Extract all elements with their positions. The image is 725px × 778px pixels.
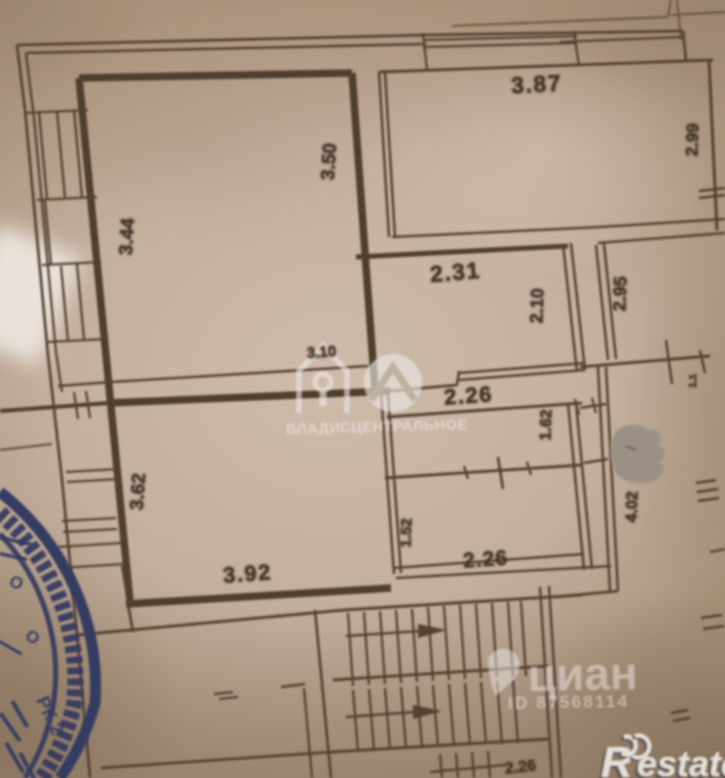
svg-text:3.87: 3.87 bbox=[511, 70, 563, 99]
svg-text:estate: estate bbox=[634, 746, 725, 778]
svg-text:2.26: 2.26 bbox=[443, 381, 493, 409]
svg-text:1.52: 1.52 bbox=[397, 518, 415, 548]
svg-text:РК 2: РК 2 bbox=[31, 693, 67, 738]
svg-text:О: О bbox=[6, 571, 26, 594]
svg-text:R: R bbox=[601, 738, 633, 778]
svg-text:3.50: 3.50 bbox=[318, 142, 342, 180]
svg-text:4.02: 4.02 bbox=[623, 491, 641, 523]
svg-text:3.62: 3.62 bbox=[127, 472, 151, 510]
svg-text:циан: циан bbox=[527, 647, 638, 701]
svg-text:1.62: 1.62 bbox=[537, 409, 555, 441]
svg-text:2.26: 2.26 bbox=[504, 757, 537, 777]
svg-text:О: О bbox=[22, 626, 44, 649]
svg-text:1.1: 1.1 bbox=[688, 373, 699, 388]
svg-text:3.44: 3.44 bbox=[116, 217, 140, 256]
svg-text:3.92: 3.92 bbox=[222, 559, 272, 587]
svg-text:2.26: 2.26 bbox=[462, 546, 508, 572]
svg-text:R: R bbox=[598, 741, 630, 778]
svg-text:estate: estate bbox=[637, 743, 725, 778]
svg-text:ID 87568114: ID 87568114 bbox=[508, 691, 630, 713]
svg-text:2.31: 2.31 bbox=[429, 257, 482, 287]
svg-text:ВЛАДИСЦЕНТРАЛЬНОЕ: ВЛАДИСЦЕНТРАЛЬНОЕ bbox=[286, 417, 468, 438]
svg-text:2.10: 2.10 bbox=[526, 288, 547, 324]
svg-text:2.99: 2.99 bbox=[682, 123, 702, 157]
svg-text:3.10: 3.10 bbox=[306, 343, 336, 362]
svg-text:2.95: 2.95 bbox=[609, 276, 630, 312]
